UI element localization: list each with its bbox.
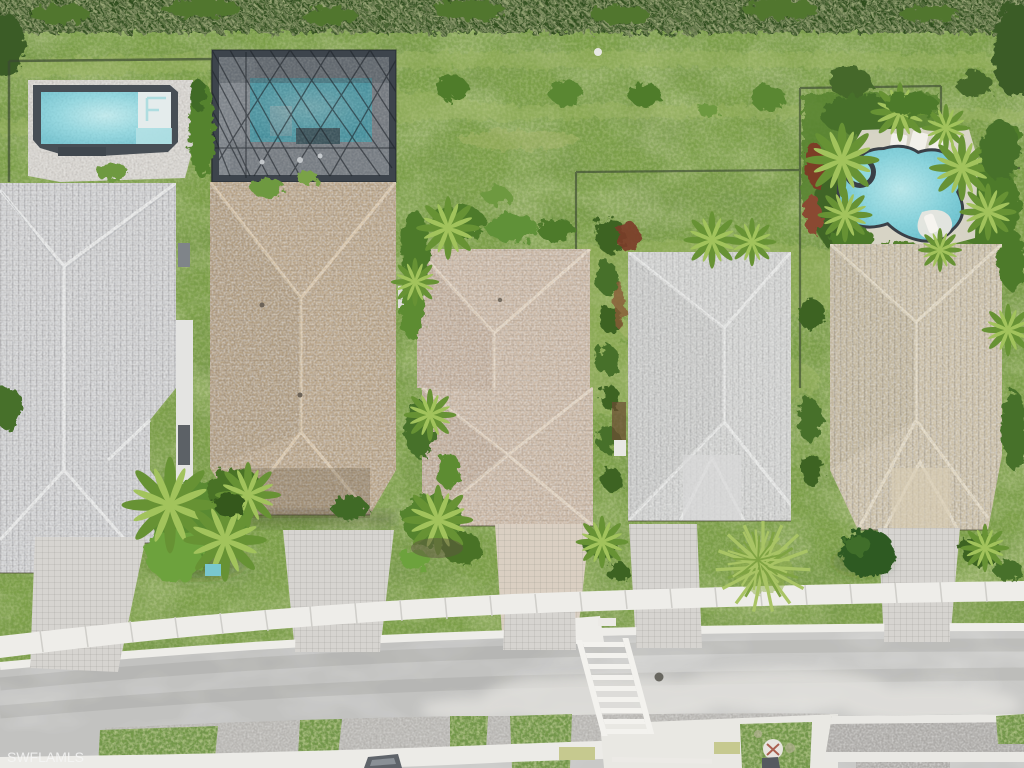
svg-text:SWFLAMLS: SWFLAMLS (7, 749, 84, 765)
